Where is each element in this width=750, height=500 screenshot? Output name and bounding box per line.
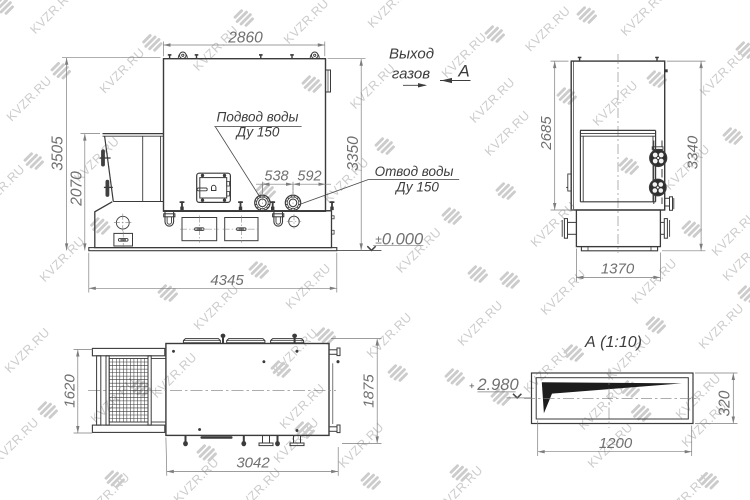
svg-text:3340: 3340 (685, 135, 702, 169)
svg-text:А: А (457, 62, 469, 81)
svg-text:А (1:10): А (1:10) (584, 334, 642, 351)
svg-text:2070: 2070 (69, 171, 86, 207)
svg-text:Выход: Выход (389, 46, 434, 63)
svg-text:1875: 1875 (361, 374, 378, 408)
svg-text:320: 320 (717, 390, 734, 416)
svg-text:3350: 3350 (345, 136, 362, 171)
svg-text:3505: 3505 (50, 136, 67, 171)
svg-text:Отвод воды: Отвод воды (375, 164, 454, 179)
svg-text:1370: 1370 (601, 261, 635, 278)
svg-text:2860: 2860 (227, 30, 263, 47)
svg-text:538: 538 (264, 169, 288, 185)
svg-text:Ду 150: Ду 150 (394, 180, 439, 195)
svg-text:1200: 1200 (599, 435, 633, 452)
svg-text:Подвод воды: Подвод воды (217, 110, 299, 125)
svg-text:2.980: 2.980 (476, 376, 519, 394)
svg-text:3042: 3042 (236, 455, 270, 472)
svg-text:1620: 1620 (61, 374, 78, 408)
svg-text:4345: 4345 (210, 272, 244, 289)
svg-text:газов: газов (392, 66, 430, 83)
svg-text:2685: 2685 (538, 116, 555, 151)
svg-text:592: 592 (297, 169, 321, 185)
